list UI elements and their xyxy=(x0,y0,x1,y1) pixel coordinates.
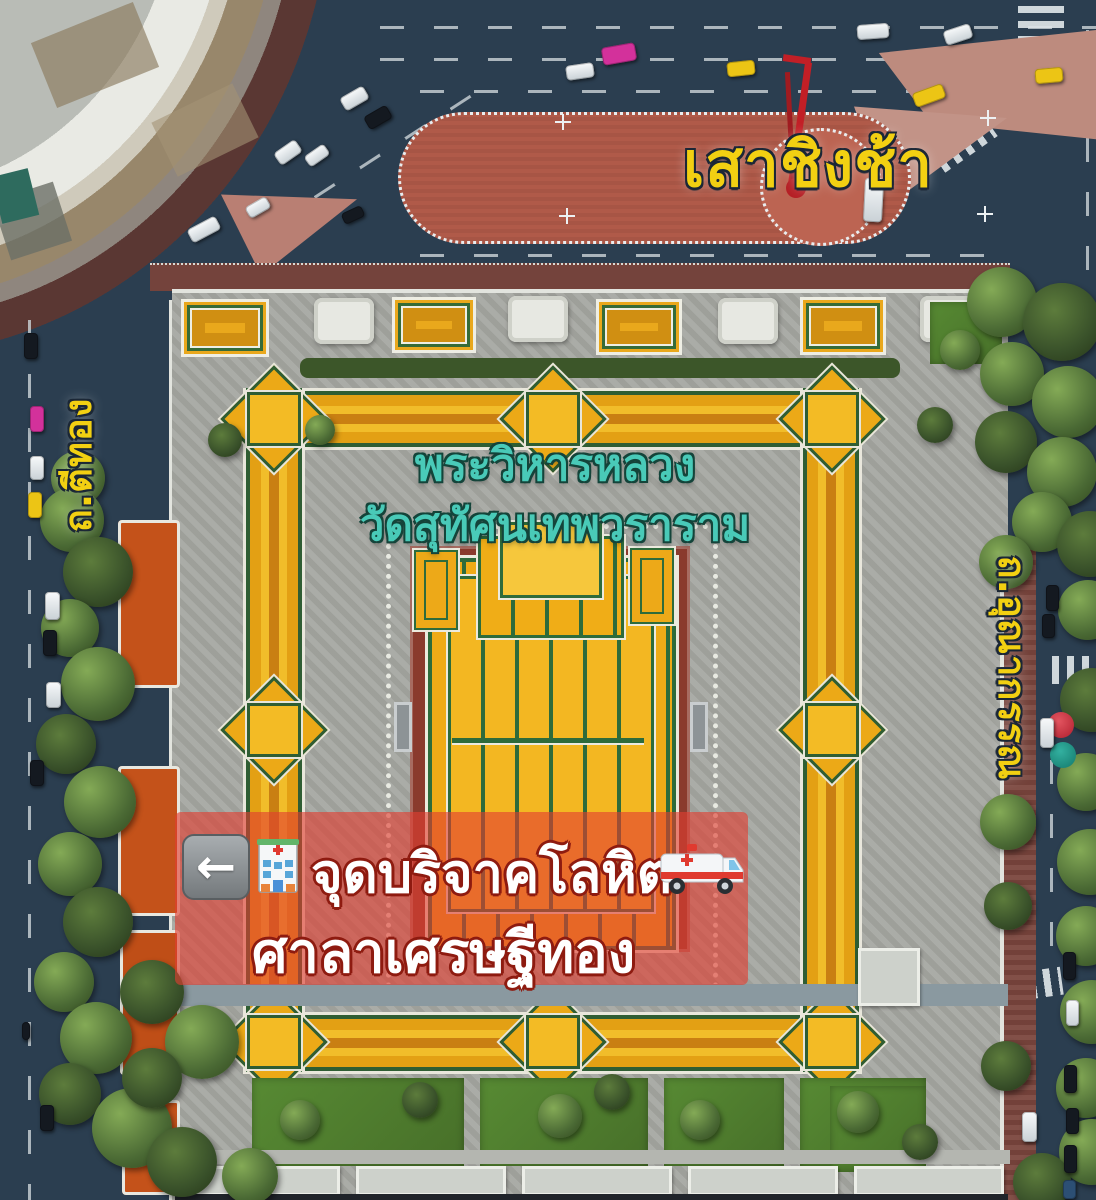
giant-swing-crossbar xyxy=(783,54,812,65)
car xyxy=(857,23,890,40)
tree xyxy=(917,407,953,443)
white-gate xyxy=(508,296,568,342)
banner-line2: ศาลาเศรษฐีทอง xyxy=(175,908,748,997)
building-row xyxy=(356,1166,506,1196)
gate-roof xyxy=(596,299,682,355)
tree xyxy=(1058,580,1096,640)
car xyxy=(24,333,38,359)
landmark-label-giant-swing: เสาชิงช้า xyxy=(683,116,933,214)
temple-name-line2: วัดสุทัศนเทพวราราม xyxy=(330,490,780,560)
building-row xyxy=(522,1166,672,1196)
inner-gate xyxy=(690,702,708,752)
tree xyxy=(940,330,980,370)
car xyxy=(43,630,57,656)
lamp-post xyxy=(559,208,575,224)
tree xyxy=(280,1100,320,1140)
car xyxy=(46,682,61,708)
car xyxy=(40,1105,54,1131)
aerial-photo-wat-suthat: เสาชิงช้า พระวิหารหลวง วัดสุทัศนเทพวรารา… xyxy=(0,0,1096,1200)
gate-roof xyxy=(800,297,886,355)
car xyxy=(1064,1065,1077,1093)
left-arrow-icon: ← xyxy=(182,834,250,900)
car xyxy=(1046,585,1059,611)
mid-pavilion xyxy=(779,677,885,783)
tree xyxy=(208,423,242,457)
car xyxy=(601,42,638,66)
tree xyxy=(222,1148,278,1200)
tree xyxy=(1056,906,1096,966)
car xyxy=(1034,67,1063,84)
gate-roof xyxy=(181,299,269,357)
tree xyxy=(1032,366,1096,438)
mid-pavilion xyxy=(221,677,327,783)
car xyxy=(28,492,42,518)
small-building xyxy=(858,948,920,1006)
tree xyxy=(984,882,1032,930)
tree xyxy=(594,1074,630,1110)
white-gate xyxy=(314,298,374,344)
tree xyxy=(837,1091,879,1133)
donation-banner: ← จุดบริจาคโลหิต ศาลาเศรษฐีทอง xyxy=(175,812,748,985)
car xyxy=(1063,952,1076,980)
tree xyxy=(680,1100,720,1140)
car xyxy=(1022,1112,1037,1142)
street-label-ti-thong: ถ.ตีทอง xyxy=(47,385,89,545)
inner-gate xyxy=(394,702,412,752)
hospital-icon xyxy=(249,836,307,896)
car xyxy=(30,760,44,786)
building-row xyxy=(688,1166,838,1196)
lamp-post xyxy=(980,110,996,126)
tree xyxy=(902,1124,938,1160)
car xyxy=(1066,1000,1079,1026)
lamp-post xyxy=(555,114,571,130)
tree xyxy=(147,1127,217,1197)
side-pavilion-roof xyxy=(414,550,458,630)
tree xyxy=(1057,829,1096,895)
tree xyxy=(36,714,96,774)
white-gate xyxy=(718,298,778,344)
tree xyxy=(61,647,135,721)
south-path xyxy=(190,1150,1010,1164)
lane-marking xyxy=(420,254,1010,257)
tree xyxy=(402,1082,438,1118)
car xyxy=(1042,614,1055,638)
street-label-unakan: ถ.อุณากรรณ xyxy=(1001,523,1043,813)
motorbike xyxy=(22,1022,30,1040)
gate-roof xyxy=(392,297,476,353)
lamp-post xyxy=(977,206,993,222)
tree xyxy=(122,1048,182,1108)
tree xyxy=(64,766,136,838)
tree xyxy=(63,887,133,957)
north-sidewalk xyxy=(150,263,1010,291)
tree xyxy=(538,1094,582,1138)
banner-line1: จุดบริจาคโลหิต xyxy=(311,830,672,916)
car xyxy=(726,60,755,78)
tree xyxy=(1023,283,1096,361)
car xyxy=(1066,1108,1079,1134)
building-row xyxy=(854,1166,1004,1196)
boundary-wall xyxy=(172,289,1008,293)
car xyxy=(1064,1145,1077,1173)
car xyxy=(45,592,60,620)
roof-ridge xyxy=(452,738,644,743)
tree xyxy=(63,537,133,607)
photo-edge-shadow xyxy=(175,1194,1008,1200)
car xyxy=(1063,1180,1076,1199)
ambulance-icon xyxy=(659,838,745,898)
car xyxy=(30,456,44,480)
car xyxy=(30,406,44,432)
teal-umbrella xyxy=(1050,742,1076,768)
left-arrow-glyph: ← xyxy=(196,839,236,895)
lane-marking xyxy=(380,26,1096,29)
corner-pavilion xyxy=(779,366,885,472)
car xyxy=(565,62,595,81)
lane-marking xyxy=(1050,760,1053,960)
tree xyxy=(981,1041,1031,1091)
